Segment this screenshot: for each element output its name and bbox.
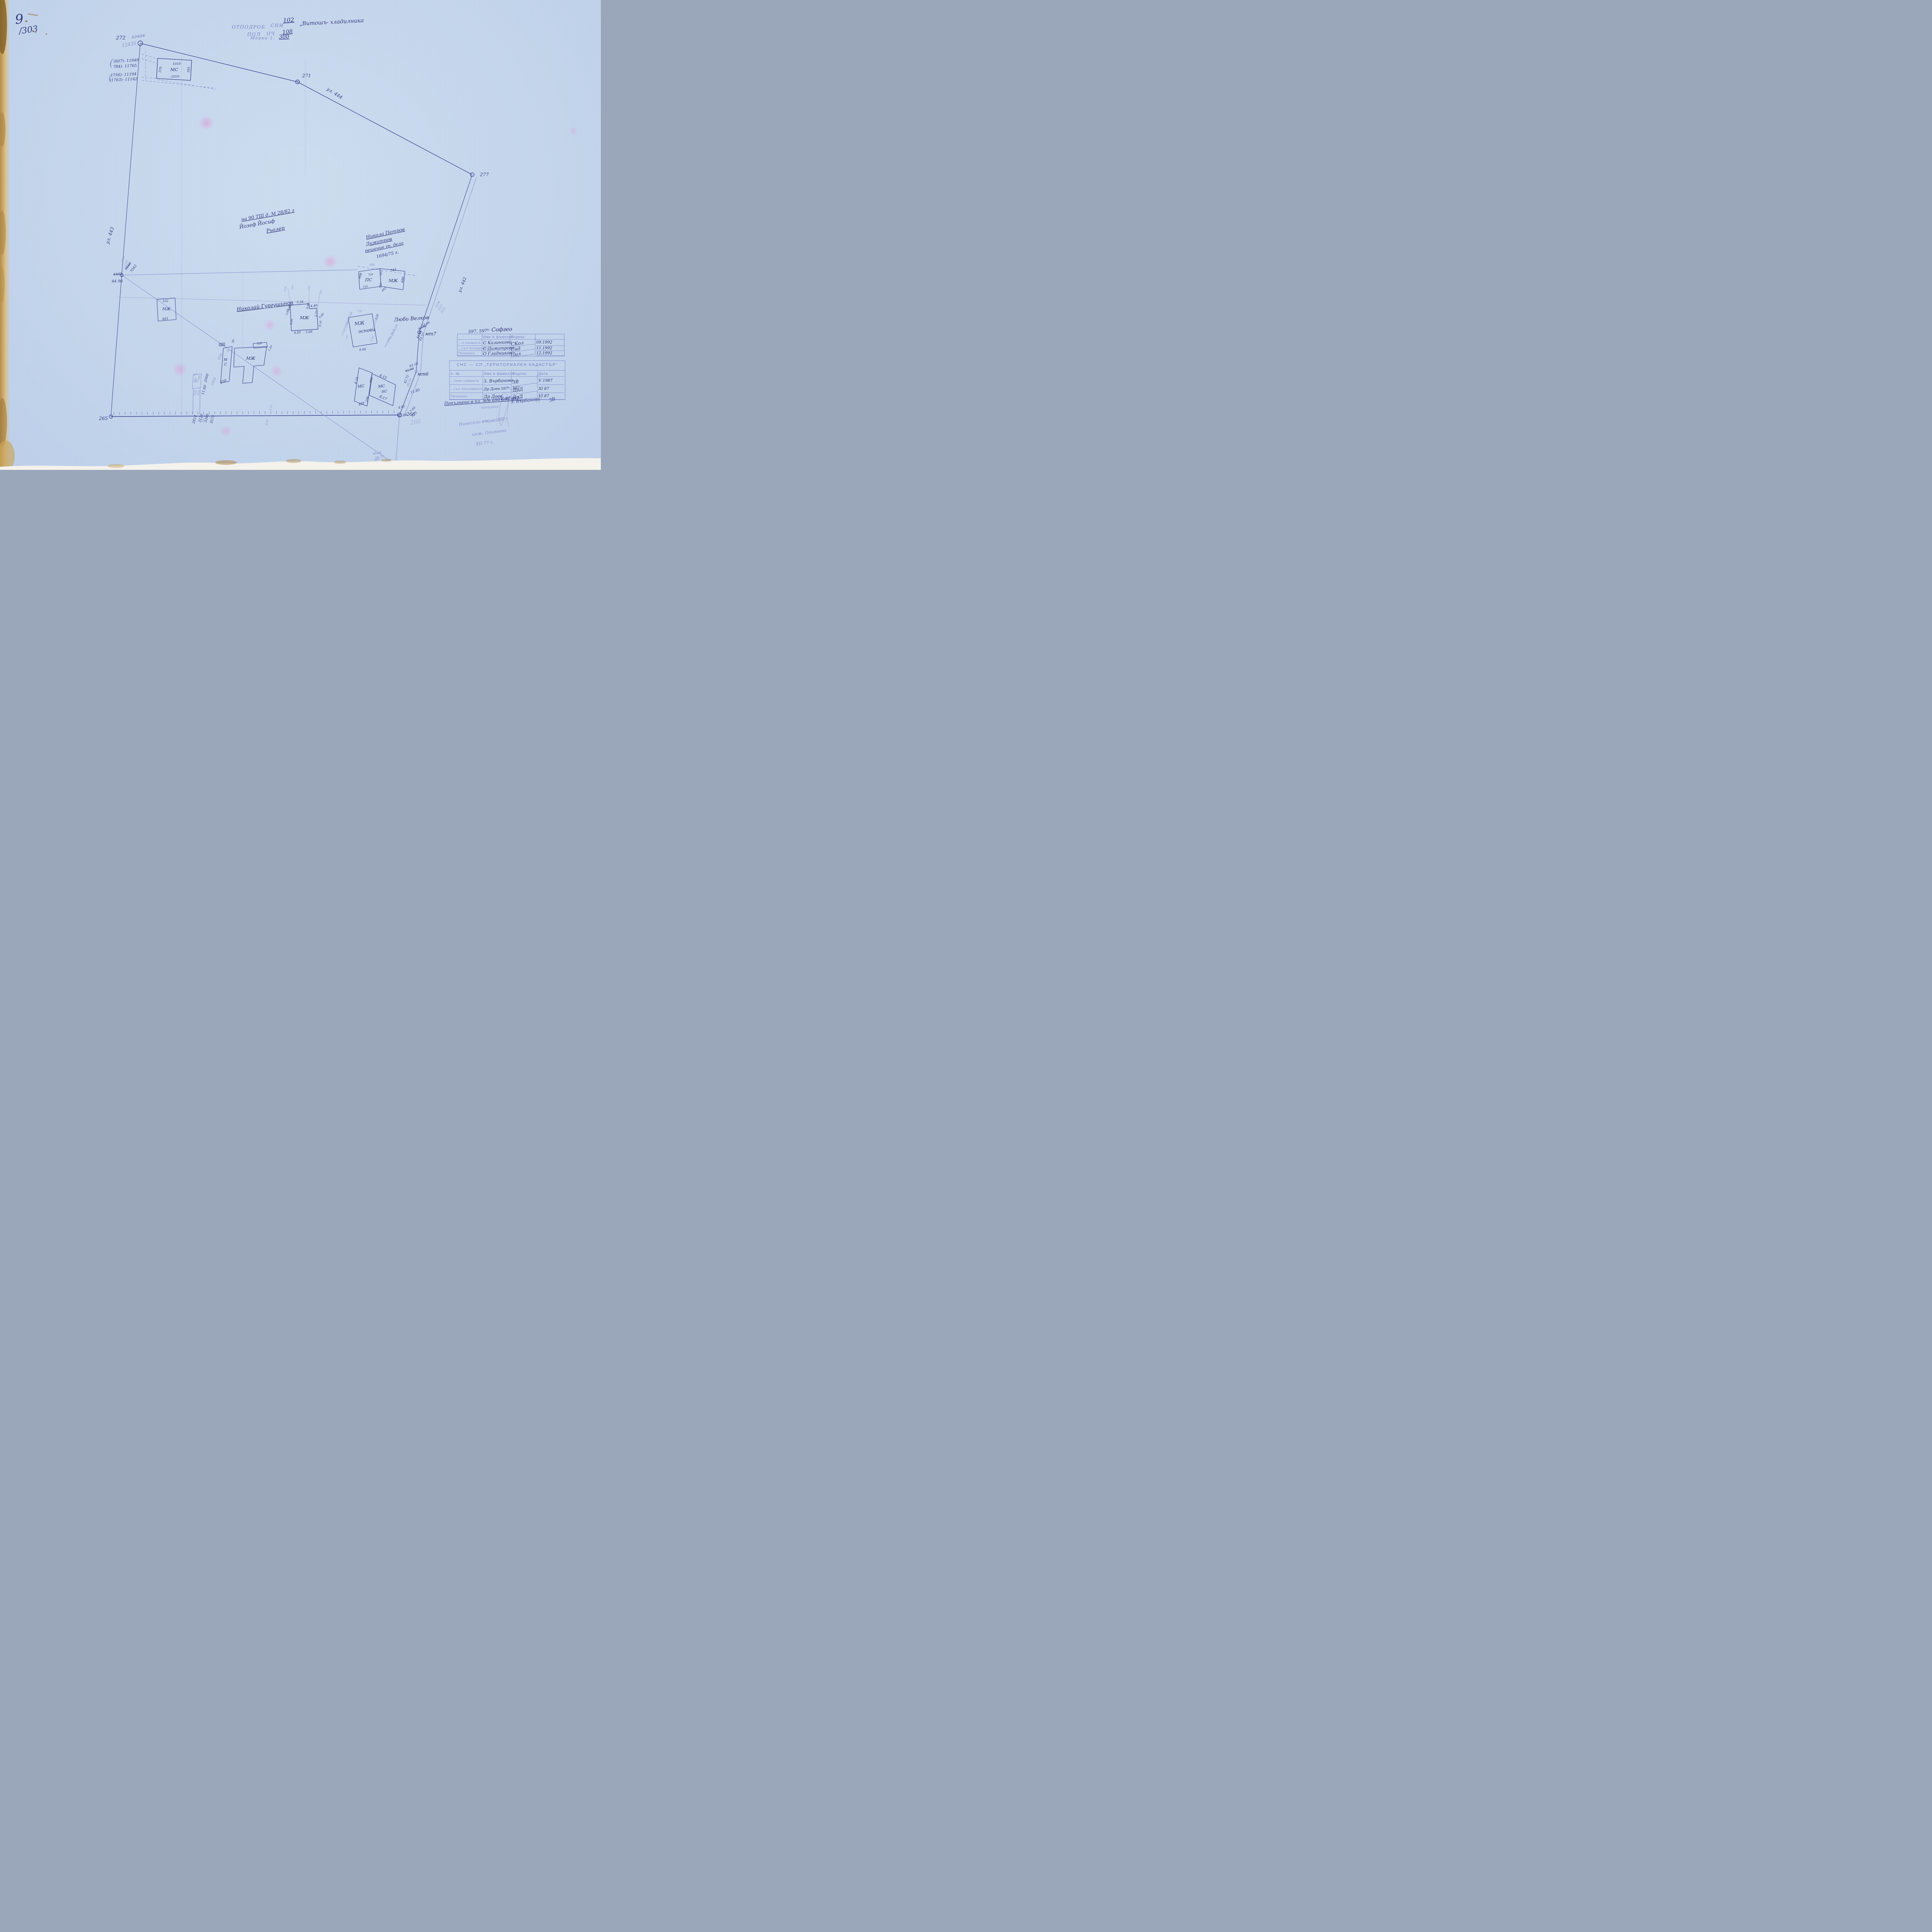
bldg5-d5: 242	[379, 282, 383, 289]
kadaster-col-no: л. №	[450, 371, 483, 377]
bldg5b-type: МЖ	[388, 278, 398, 283]
bldg3-type: МЖ	[299, 315, 309, 320]
bldg8-d5: 8.15	[379, 374, 388, 381]
owner-note-4: 1694/75 г.	[376, 250, 399, 259]
bldg1-dim-top: 1010-	[173, 62, 182, 66]
bldg8b-type2: НС	[381, 389, 388, 394]
bldg5-d1: 731-	[368, 273, 374, 277]
bldg4-n5: (447/3195	[372, 314, 379, 328]
bldg8-d4: 206	[365, 396, 370, 403]
chain-3260: 3260	[204, 413, 210, 423]
note-entered-2: инж. Огнянова	[472, 428, 507, 437]
buildings	[156, 58, 405, 406]
bldg3-d6: 4.10	[318, 320, 323, 327]
kadaster-table: СНС — СП „ТЕРИТОРИАЛЕН КАДАСТЪР“ л. № Им…	[449, 361, 565, 400]
place-name: „Витошъ- хладилника	[299, 17, 364, 27]
point-label-271: 271	[302, 73, 311, 78]
owner-velkov: Любо Велков	[393, 315, 429, 323]
bldg5-d3: 408	[357, 272, 363, 279]
bldg7-n2: 500	[197, 375, 201, 380]
bldg6-d6: 320	[257, 342, 262, 345]
coord-4490: 44 90	[111, 279, 123, 284]
bldg2-dim-top: 532	[163, 299, 169, 303]
bldg3-d8: 3.60	[285, 309, 290, 316]
pole-num-2: 705	[291, 285, 294, 290]
bldg6-d1: 980	[219, 342, 226, 347]
bldg8a-type: МС	[357, 384, 365, 389]
bldg4-n6: 5.45	[370, 335, 375, 342]
bldg4-n3: —33	[344, 335, 349, 341]
pole-num-1: 1101	[284, 286, 287, 292]
title-stamp-2: СНИ	[270, 23, 284, 28]
ref-list-4: (1763)- 11142	[110, 77, 138, 83]
street-label-443: ул. 443	[104, 226, 115, 245]
bldg1-dim-bottom: -1010-	[170, 75, 180, 78]
map-sheet: 9/303102ОТПОДРОБСНИ„Витошъ- хладилникаПО…	[0, 0, 601, 470]
bldg8-d6: 8.17	[379, 395, 388, 401]
bldg8-d2: 429	[358, 401, 365, 406]
bldg4-n11: 750	[357, 310, 362, 313]
bldg7-n1: 300	[193, 372, 198, 376]
rb-6100: 61.00	[405, 367, 415, 373]
bc-315: 3.15	[269, 404, 273, 411]
kadaster-row-label: …лния снимката	[450, 377, 483, 385]
bldg4-n10: 100 1001	[384, 337, 391, 348]
sheet-bottom-tear	[0, 458, 601, 470]
building-mzh-south	[234, 347, 267, 383]
pole-num-4: 310	[320, 290, 323, 294]
sofgeo-row-date: 12.1992	[536, 351, 565, 356]
bldg3-d1: 5.34	[296, 300, 304, 304]
ref-list-1: (607)- 11949	[114, 58, 139, 64]
bldg3-d11: 5.66	[306, 330, 313, 334]
sofgeo-row-name: О Гладников	[482, 350, 510, 357]
bldg4-type: МЖ	[354, 320, 365, 327]
bldg4-n7: 9.00	[359, 347, 366, 352]
point-label-272: 272	[116, 35, 126, 41]
bldg2-dim-bottom: 463	[162, 317, 168, 321]
owner-gurgushinov: Николай Гургушинов	[236, 300, 294, 313]
annotations-layer: 9/303102ОТПОДРОБСНИ„Витошъ- хладилникаПО…	[14, 11, 556, 470]
note-court-3: Рьолер	[265, 225, 285, 234]
bldg1-type: МС	[170, 67, 178, 72]
title-stamp-1: ОТПОДРОБ	[232, 24, 265, 30]
bldg5a-type: ПС	[365, 277, 372, 282]
old-number: 12435	[121, 41, 137, 48]
crossed-number: 12434	[131, 33, 145, 40]
bldg3-d9: 4.20	[289, 318, 294, 325]
bldg8b-type: МС	[378, 384, 386, 389]
plan-number: 102	[283, 16, 294, 24]
kadaster-col-date: Дата	[538, 371, 564, 377]
bldg3-d4: 2.77	[314, 310, 318, 317]
bldg3-d3: 4.40	[310, 304, 318, 308]
bldg3-d5: 0.60	[318, 312, 325, 319]
sofgeo-row-label: …л снимката	[457, 340, 482, 346]
bldg8-d1: 6.10	[354, 377, 359, 384]
pole-num-3: 740	[308, 286, 311, 290]
bldg8-d3: 390	[369, 377, 374, 383]
chain-1160: 11.60	[201, 384, 207, 395]
bldg1-dim-right: 585	[187, 66, 191, 73]
bldg1-dim-left: 570	[158, 66, 163, 73]
kadaster-col-name: Име и фамилия	[483, 371, 512, 377]
kadaster-row-label: Проверил	[450, 393, 483, 400]
bldg5-d0: 780	[369, 263, 375, 267]
kadaster-row-name: Др Доев	[483, 393, 512, 400]
scale-stamp: Мерка·1:	[250, 36, 275, 41]
point-label-277: 277	[480, 172, 489, 177]
note-entered-1: Нанесено в к. л. 597	[458, 417, 505, 427]
bldg6-d2: 240	[226, 348, 231, 353]
kadaster-row-date: V 1987	[538, 377, 564, 385]
bldg6-d5: 250	[219, 379, 227, 385]
tbl1-title: Софгео	[492, 326, 512, 333]
kadaster-row-name: Др Доев 597ᴵᵛ, 597	[483, 384, 512, 394]
rb-1185: 11.85	[410, 388, 421, 395]
bldg6-d3: 50	[231, 339, 235, 344]
ref-list-3: (756)- 11194	[111, 72, 137, 78]
sofgeo-col-date	[536, 334, 565, 340]
survey-points	[109, 41, 474, 467]
rb-1266: 12.66	[398, 413, 407, 418]
chain-2000: 2000	[204, 373, 210, 383]
note-author: попълнил	[481, 405, 499, 410]
sofgeo-row-date: 11.1992	[536, 346, 565, 351]
bldg5-d4: 211	[379, 270, 383, 276]
bldg5-d6: 743	[390, 268, 397, 272]
parcel-boundary	[111, 43, 476, 469]
bldg6b-type: МЖ	[246, 356, 255, 361]
note-entered-3: XII 77 г.	[475, 439, 494, 447]
sofgeo-col-name: Име и фамилия	[482, 334, 510, 340]
station-label-mt7: мт7	[425, 331, 436, 337]
kadaster-row-date: XI 87	[538, 385, 564, 393]
chain-1950: 1950	[211, 377, 218, 386]
ref-list-2: 784)- 11765	[113, 64, 137, 69]
bldg5-d7: 689	[400, 276, 405, 283]
station-label-mt6: мт6	[417, 371, 429, 377]
crossed-coord: 4492	[113, 272, 122, 277]
sofgeo-row-date: 09.1992	[536, 340, 565, 346]
bc-916: 9.16	[265, 419, 269, 425]
bldg6-type-m: М	[223, 358, 228, 362]
bldg4-n2: 1733/—33.01	[341, 318, 350, 336]
ghost-266: 266	[409, 418, 422, 426]
bldg3-d10: 4.05	[293, 330, 301, 335]
bldg2-type: МЖ	[162, 307, 171, 311]
sheet-number: 9	[14, 11, 24, 27]
scale-value: 300	[279, 34, 289, 40]
street-label-442: ул. 442	[457, 276, 468, 293]
bldg6-type-s: С	[224, 363, 227, 367]
sofgeo-col-ref	[457, 334, 482, 340]
rb-6158: 61.58	[409, 362, 419, 368]
rb-445: 4.45	[397, 405, 405, 410]
sofgeo-table: Име и фамилия Подпис …л снимката С Калин…	[457, 334, 565, 356]
kadaster-row-date: VI 87	[538, 393, 564, 400]
tbl1-parcel-ref: 597, 597ᴵᵛ	[468, 328, 490, 334]
kadaster-row-label: …съл попълването	[450, 385, 483, 393]
kadaster-title: СНС — СП „ТЕРИТОРИАЛЕН КАДАСТЪР“	[450, 361, 565, 370]
point-label-265: 265	[99, 416, 108, 421]
sofgeo-row-label: Проверил	[457, 351, 482, 356]
sofgeo-row-label: …съл ползването	[457, 346, 482, 351]
bldg6-d7: 1.20	[267, 345, 273, 352]
kadaster-row-name: З. Върбанова	[483, 376, 512, 386]
